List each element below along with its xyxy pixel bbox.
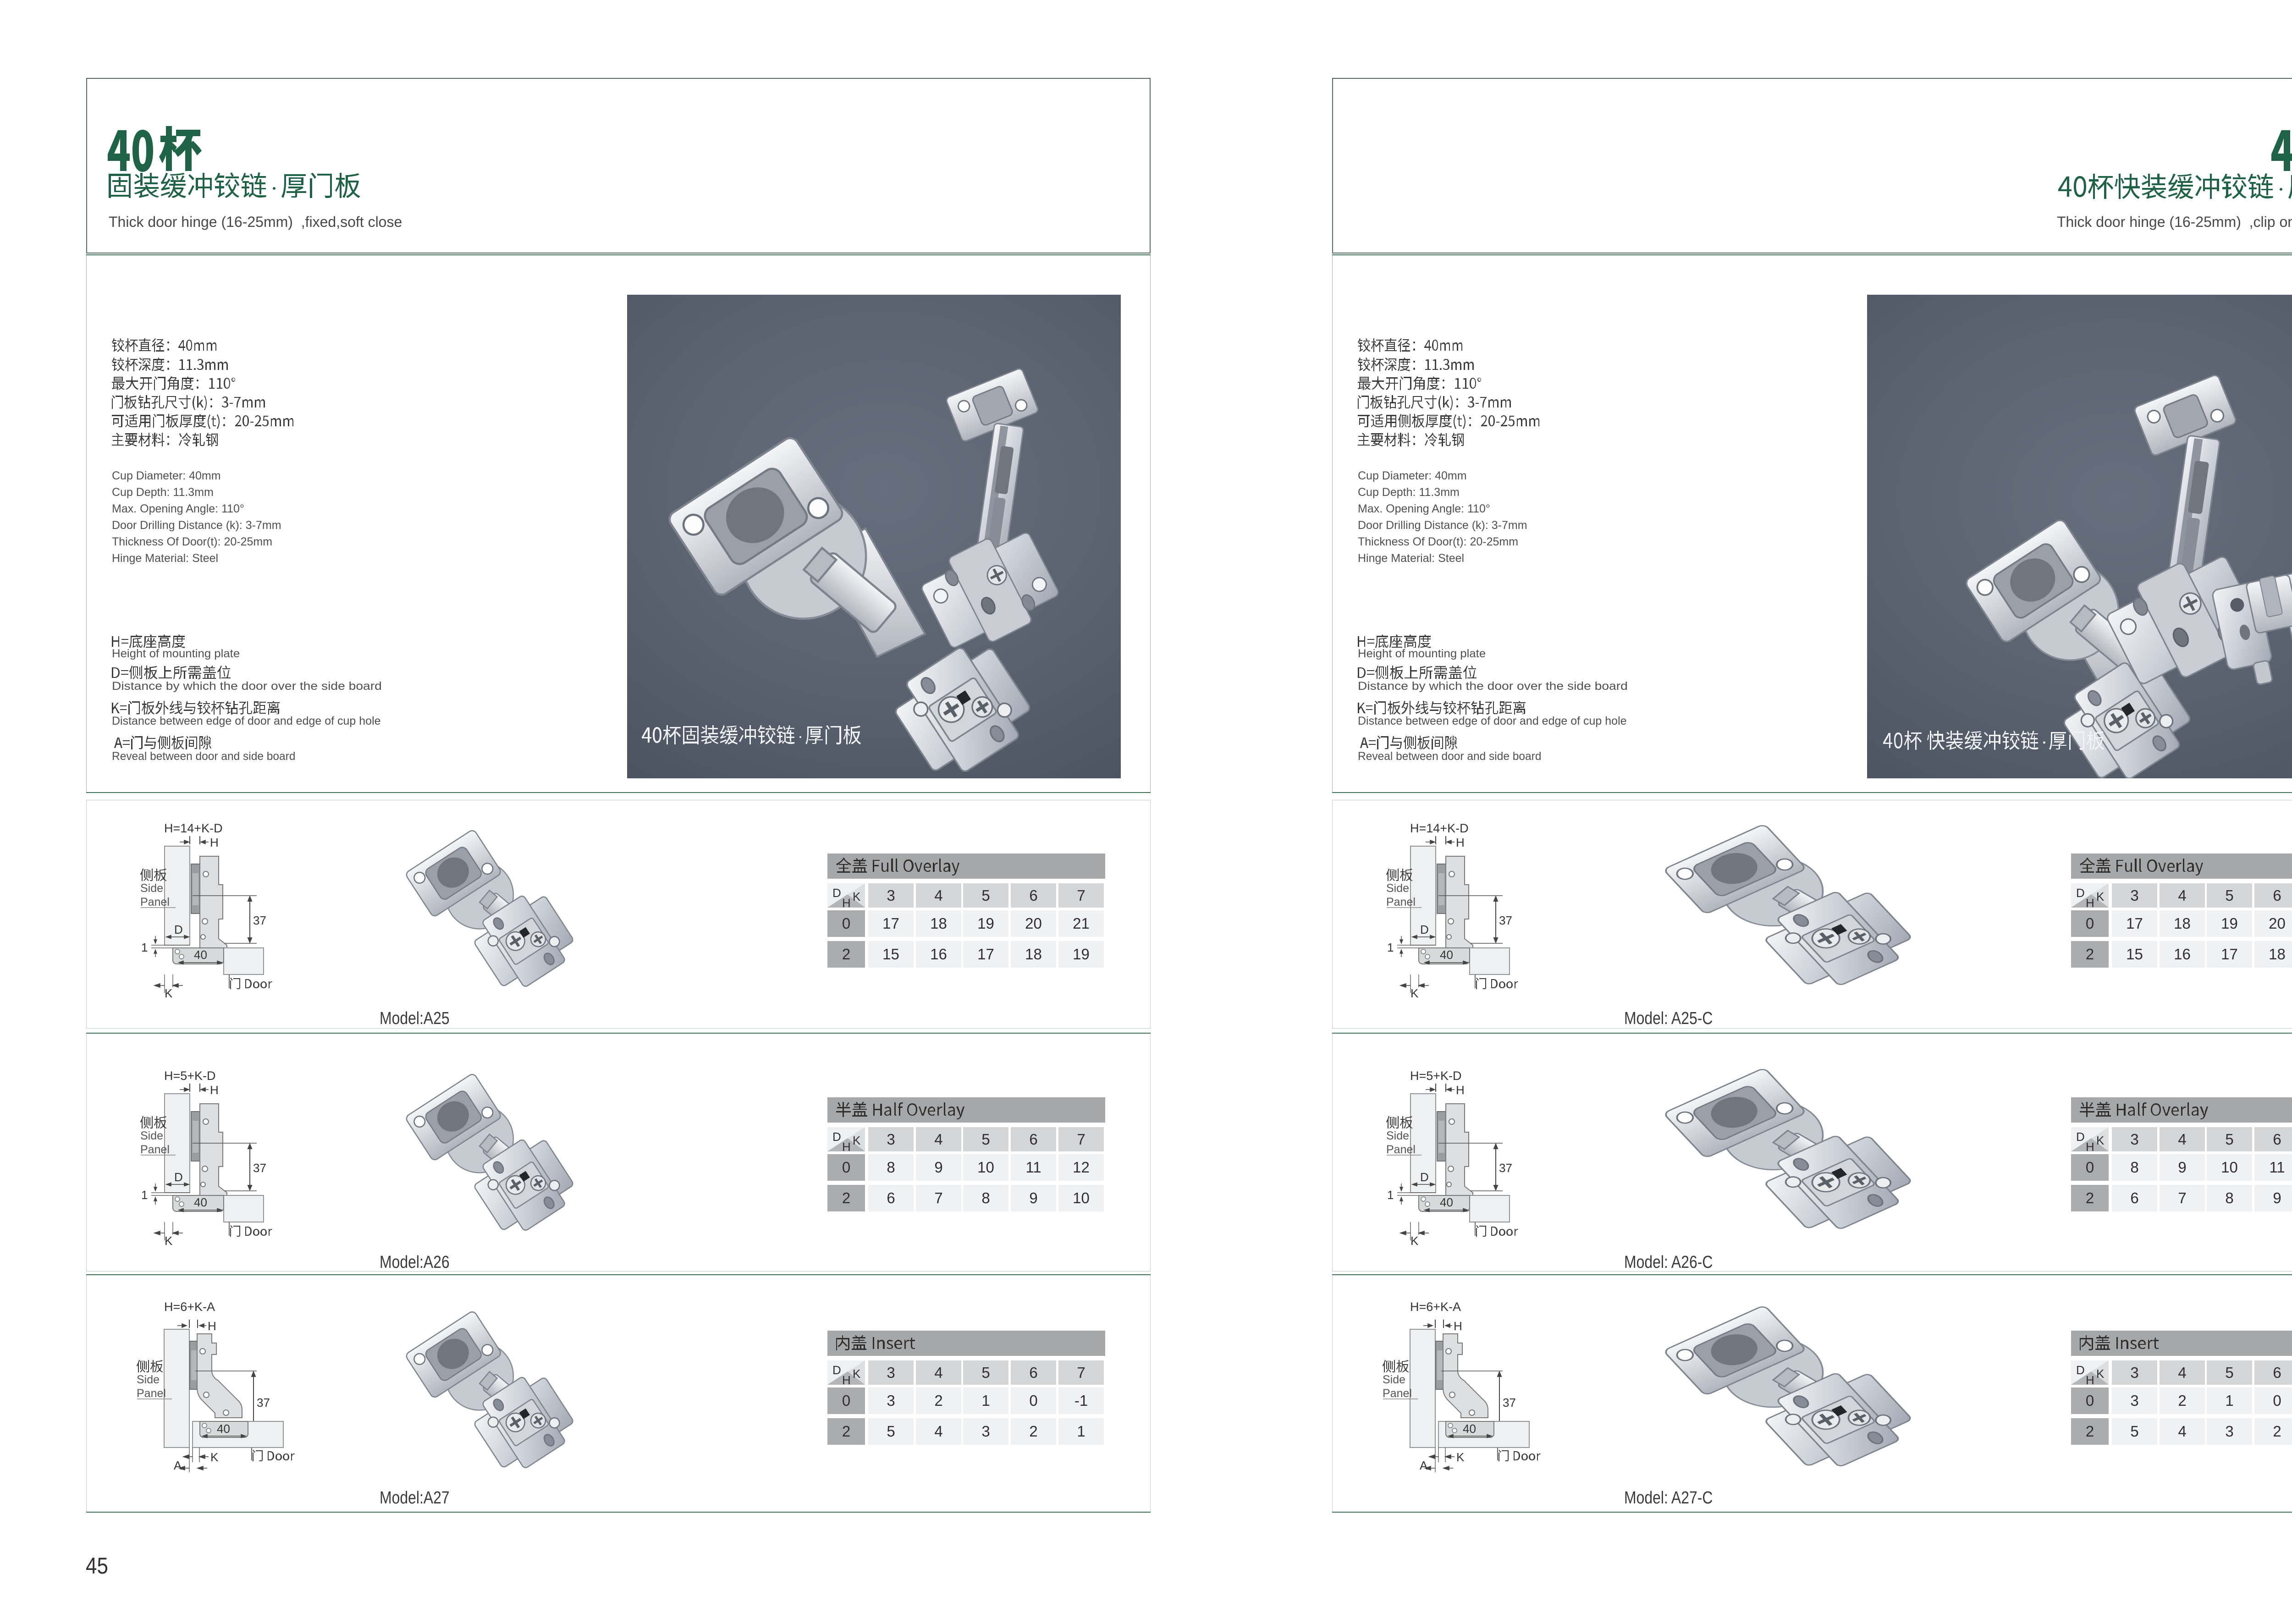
svg-text:H=14+K-D: H=14+K-D — [164, 821, 223, 835]
svg-text:Panel: Panel — [1386, 1143, 1416, 1156]
svg-text:Panel: Panel — [1383, 1387, 1412, 1400]
svg-text:Side: Side — [1383, 1373, 1405, 1386]
svg-text:H=14+K-D: H=14+K-D — [1410, 821, 1469, 835]
svg-text:D: D — [832, 886, 841, 900]
svg-text:Side: Side — [140, 1129, 163, 1142]
svg-text:K: K — [2096, 1367, 2105, 1381]
svg-text:H: H — [2086, 896, 2094, 908]
svg-text:H=5+K-D: H=5+K-D — [1410, 1069, 1462, 1083]
svg-text:K: K — [2096, 890, 2105, 903]
svg-text:Side: Side — [1386, 882, 1409, 895]
svg-text:Panel: Panel — [140, 1143, 170, 1156]
svg-text:D: D — [832, 1130, 841, 1144]
svg-text:H: H — [2086, 1373, 2094, 1385]
svg-text:D: D — [2076, 1130, 2085, 1144]
svg-text:K: K — [853, 1367, 861, 1381]
svg-text:D: D — [2076, 886, 2085, 900]
svg-text:Side: Side — [1386, 1129, 1409, 1142]
svg-text:H: H — [2086, 1140, 2094, 1151]
svg-text:H: H — [842, 1373, 851, 1385]
svg-text:Panel: Panel — [1386, 896, 1416, 908]
svg-text:Panel: Panel — [137, 1387, 166, 1400]
svg-text:K: K — [853, 890, 861, 903]
svg-text:H=6+K-A: H=6+K-A — [1410, 1300, 1461, 1314]
svg-text:H: H — [842, 1140, 851, 1151]
svg-text:Side: Side — [137, 1373, 160, 1386]
svg-text:K: K — [853, 1134, 861, 1147]
svg-text:Panel: Panel — [140, 896, 170, 908]
svg-text:H=5+K-D: H=5+K-D — [164, 1069, 216, 1083]
svg-text:Side: Side — [140, 882, 163, 895]
svg-text:H=6+K-A: H=6+K-A — [164, 1300, 215, 1314]
svg-text:K: K — [2096, 1134, 2105, 1147]
svg-text:H: H — [842, 896, 851, 908]
svg-text:D: D — [832, 1363, 841, 1377]
svg-text:D: D — [2076, 1363, 2085, 1377]
